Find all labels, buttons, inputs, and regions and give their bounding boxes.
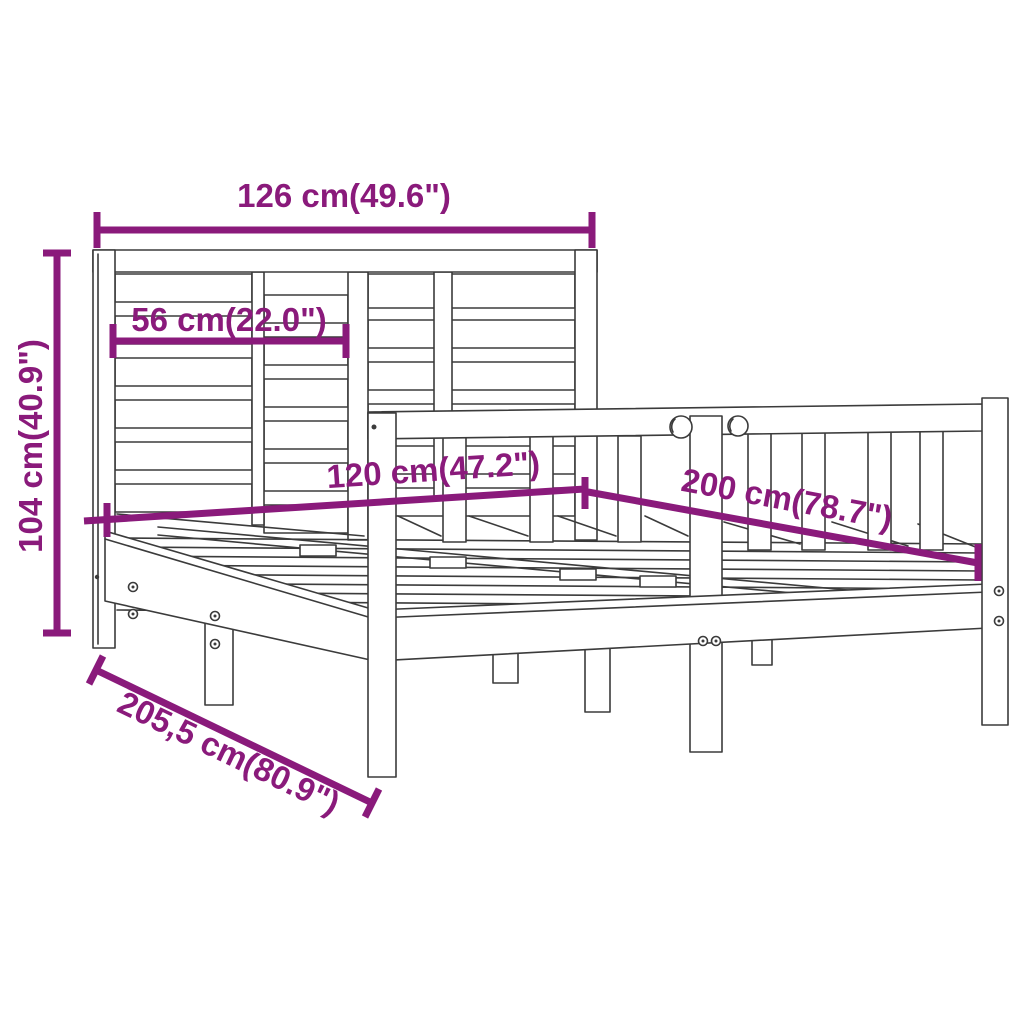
headboard-slat [264, 379, 348, 407]
screw-dot [715, 640, 718, 643]
dimension-headboard-width: 126 cm(49.6") [97, 177, 592, 248]
headboard-slat [115, 400, 252, 428]
screw-dot [132, 613, 135, 616]
screw-dot [214, 643, 217, 646]
dimension-frame-total-length: 205,5 cm(80.9") [89, 656, 379, 822]
support-bracket [560, 569, 596, 580]
headboard-slat [368, 320, 575, 348]
cam-lock-screw [670, 416, 692, 438]
support-bracket [300, 545, 336, 556]
headboard-slat [115, 358, 252, 386]
support-bracket [430, 557, 466, 568]
base-slat-line [117, 556, 981, 562]
screw-dot [998, 590, 1001, 593]
dimension-label: 104 cm(40.9") [12, 339, 49, 553]
dimension-label: 126 cm(49.6") [237, 177, 451, 214]
screw-dot [702, 640, 705, 643]
leg-foot-post [982, 398, 1008, 725]
cam-lock-screw [728, 416, 748, 436]
diagram-canvas: 126 cm(49.6") 56 cm(22.0") 104 cm(40.9")… [0, 0, 1024, 1024]
bed-frame-dimension-diagram: 126 cm(49.6") 56 cm(22.0") 104 cm(40.9")… [0, 0, 1024, 1024]
dimension-headboard-height: 104 cm(40.9") [12, 253, 71, 633]
base-slat-line [117, 547, 981, 553]
headboard-slat [368, 362, 575, 390]
headboard-slat [115, 484, 252, 512]
headboard-slat [115, 274, 252, 302]
dimension-label: 56 cm(22.0") [131, 301, 326, 338]
headboard-slat [115, 442, 252, 470]
screw-dot [132, 586, 135, 589]
screw-dot [372, 425, 377, 430]
headboard-slat [368, 274, 575, 308]
screw-dot [95, 575, 99, 579]
leg [585, 645, 610, 712]
screw-dot [998, 620, 1001, 623]
support-bracket [640, 576, 676, 587]
inner-rail-edge [645, 516, 688, 536]
headboard-top-rail [93, 250, 597, 272]
baluster [618, 436, 641, 542]
headboard-slat [264, 421, 348, 449]
baluster [920, 428, 943, 550]
screw-dot [214, 615, 217, 618]
